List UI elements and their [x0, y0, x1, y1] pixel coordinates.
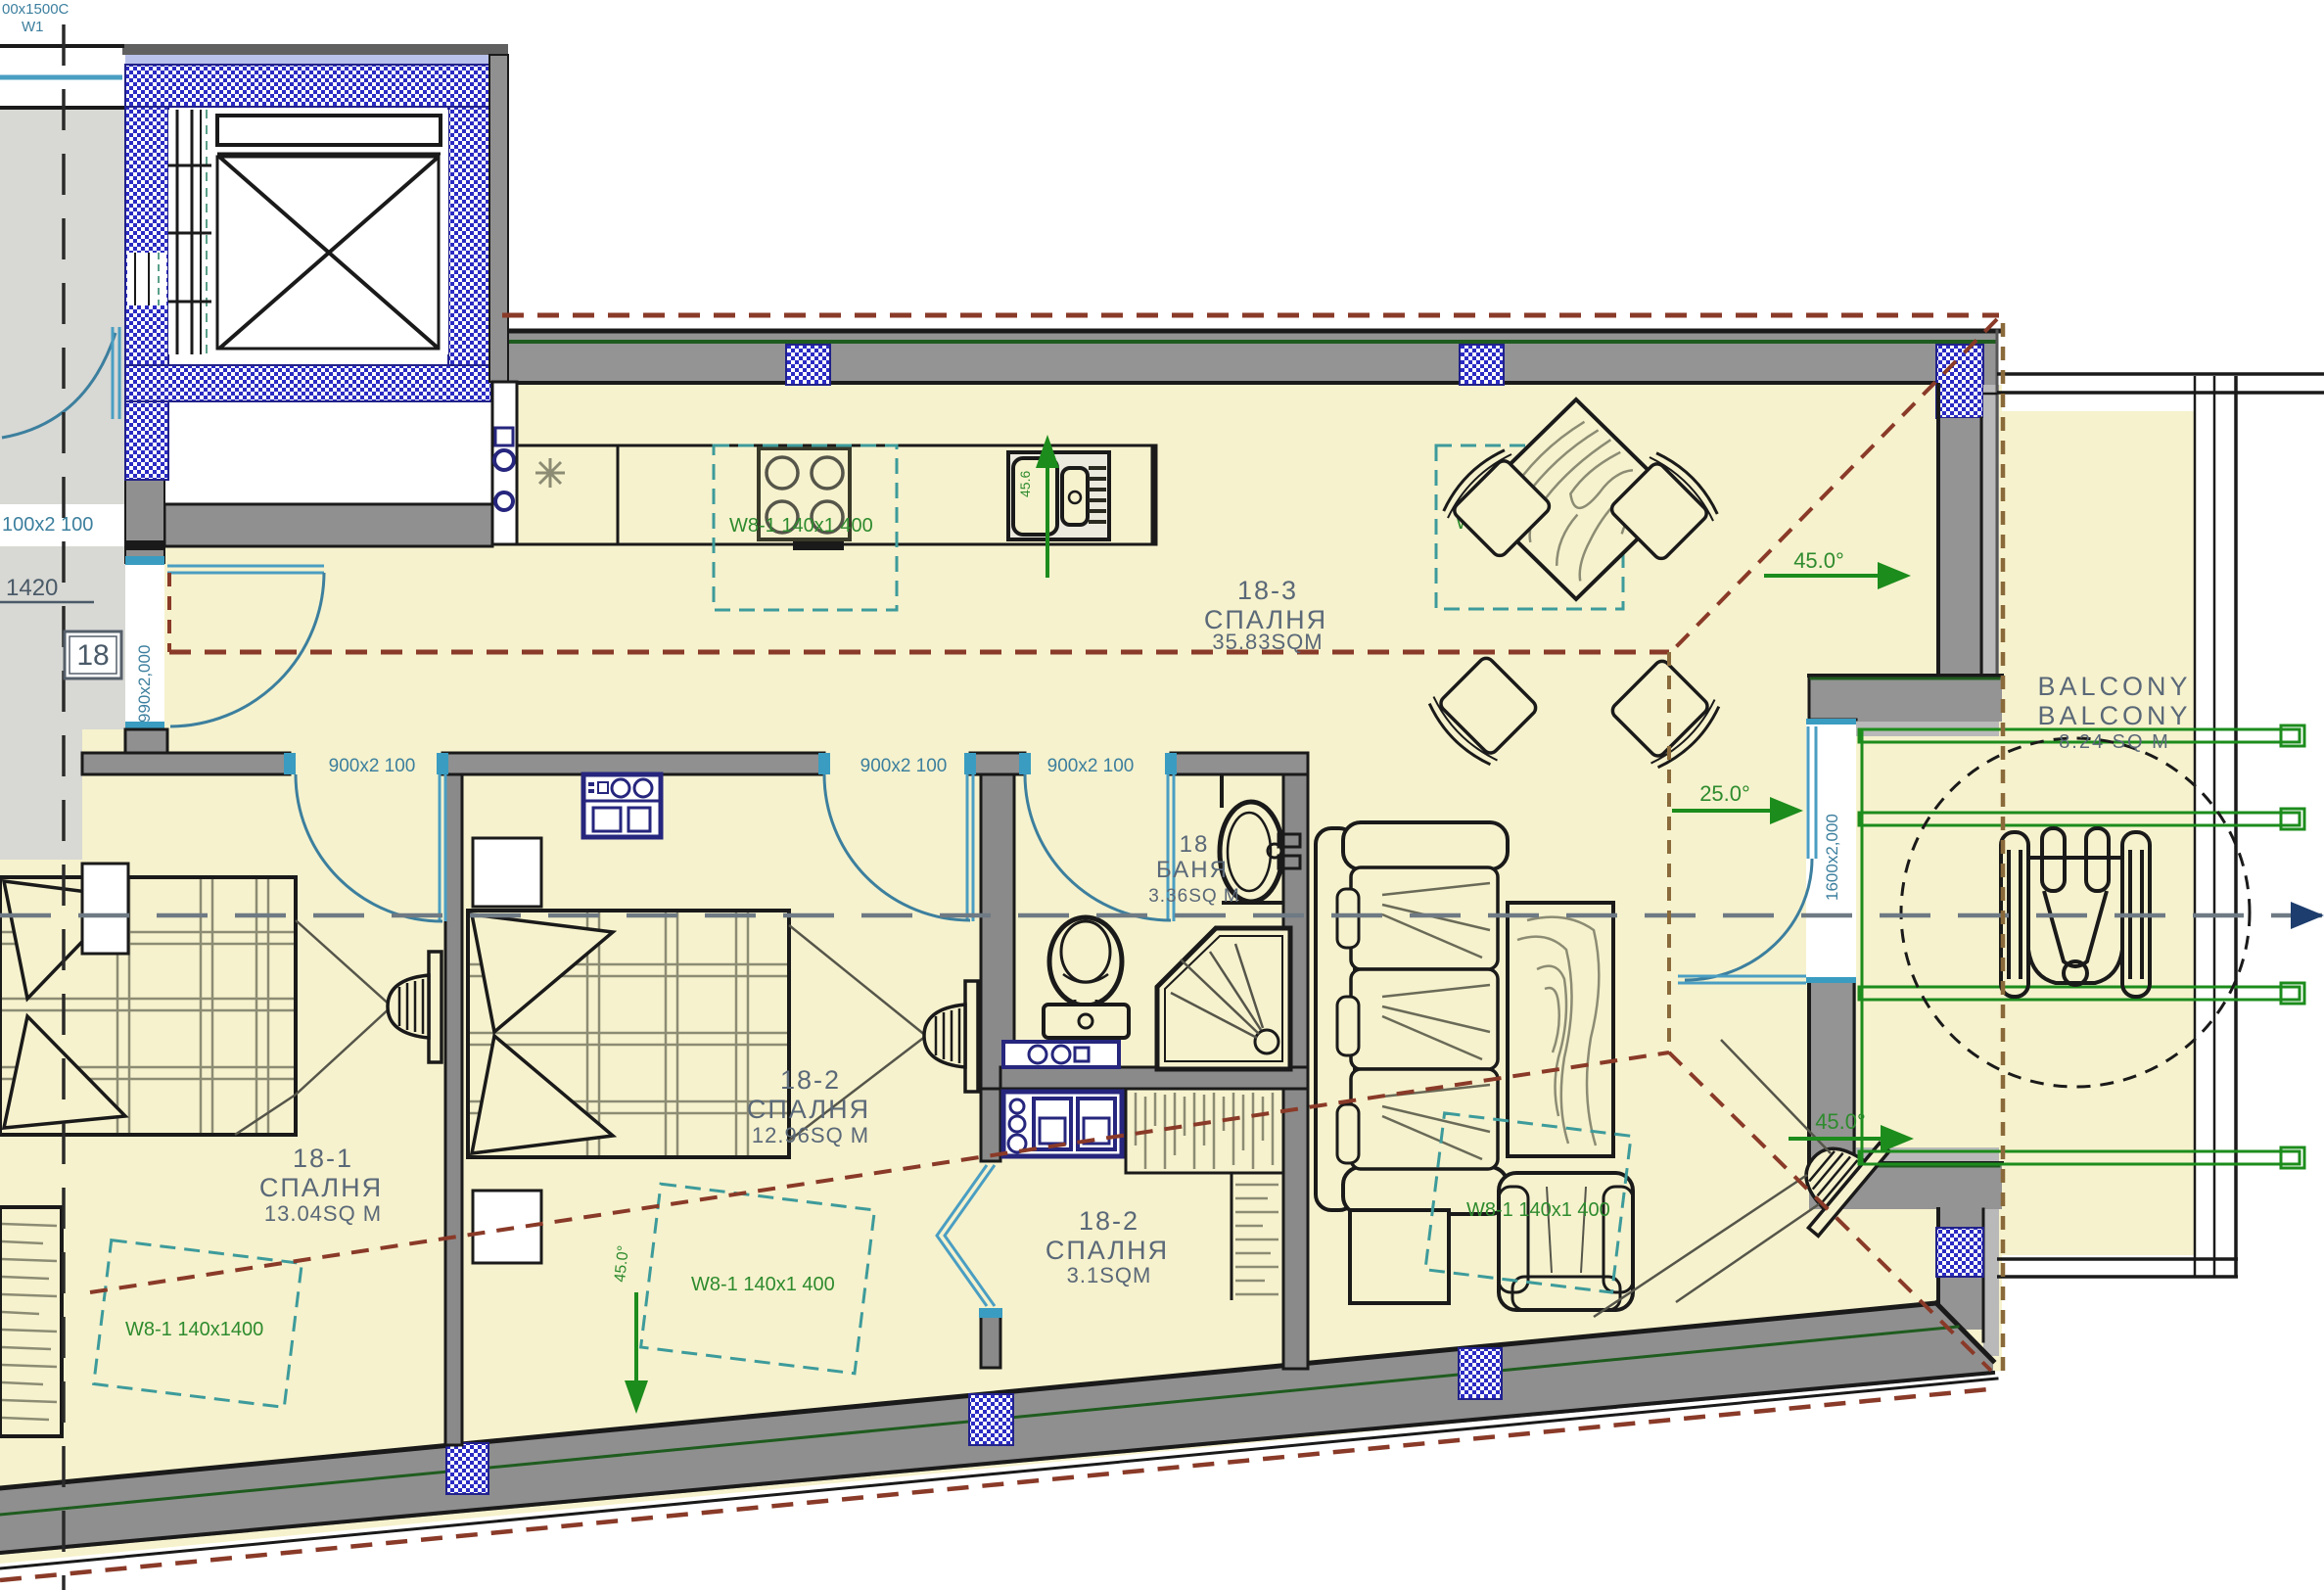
svg-text:18: 18	[1180, 831, 1210, 858]
svg-text:СПАЛНЯ: СПАЛНЯ	[259, 1173, 383, 1202]
svg-text:W8-1 140x1 400: W8-1 140x1 400	[691, 1274, 835, 1295]
svg-text:45.0°: 45.0°	[1815, 1109, 1866, 1134]
svg-text:3.1SQM: 3.1SQM	[1067, 1263, 1152, 1287]
svg-text:45.0°: 45.0°	[1793, 548, 1844, 573]
svg-text:8.24 SQ M: 8.24 SQ M	[2059, 731, 2170, 753]
svg-text:25.0°: 25.0°	[1699, 781, 1750, 806]
svg-text:W1: W1	[22, 19, 44, 35]
svg-text:45.6: 45.6	[1017, 471, 1033, 497]
svg-text:3.36SQ M: 3.36SQ M	[1148, 886, 1240, 907]
svg-text:12.96SQ M: 12.96SQ M	[752, 1123, 869, 1147]
svg-text:СПАЛНЯ: СПАЛНЯ	[1046, 1236, 1169, 1265]
svg-text:18-2: 18-2	[780, 1065, 841, 1095]
svg-text:100x2 100: 100x2 100	[2, 514, 93, 536]
svg-text:900x2 100: 900x2 100	[860, 756, 948, 776]
svg-text:1420: 1420	[6, 575, 58, 601]
svg-text:W8-1 140x1400: W8-1 140x1400	[125, 1319, 263, 1340]
svg-text:W8-1 140x1 400: W8-1 140x1 400	[729, 515, 873, 537]
svg-text:13.04SQ M: 13.04SQ M	[264, 1201, 382, 1226]
svg-text:990x2,000: 990x2,000	[135, 645, 154, 723]
svg-text:900x2 100: 900x2 100	[1047, 756, 1135, 776]
svg-text:18-3: 18-3	[1237, 576, 1298, 605]
svg-text:W8-1 140x1 400: W8-1 140x1 400	[1466, 1199, 1610, 1221]
svg-text:BALCONY: BALCONY	[2037, 701, 2191, 730]
svg-text:СПАЛНЯ: СПАЛНЯ	[747, 1095, 870, 1124]
svg-text:35.83SQM: 35.83SQM	[1212, 630, 1323, 654]
svg-text:1600x2,000: 1600x2,000	[1823, 814, 1841, 901]
svg-text:900x2 100: 900x2 100	[329, 756, 416, 776]
svg-text:18-1: 18-1	[293, 1144, 353, 1173]
svg-text:18: 18	[76, 639, 109, 672]
svg-text:18-2: 18-2	[1079, 1206, 1139, 1236]
svg-text:БАНЯ: БАНЯ	[1156, 857, 1229, 883]
svg-text:00x1500C: 00x1500C	[2, 1, 70, 18]
svg-text:BALCONY: BALCONY	[2037, 672, 2191, 701]
